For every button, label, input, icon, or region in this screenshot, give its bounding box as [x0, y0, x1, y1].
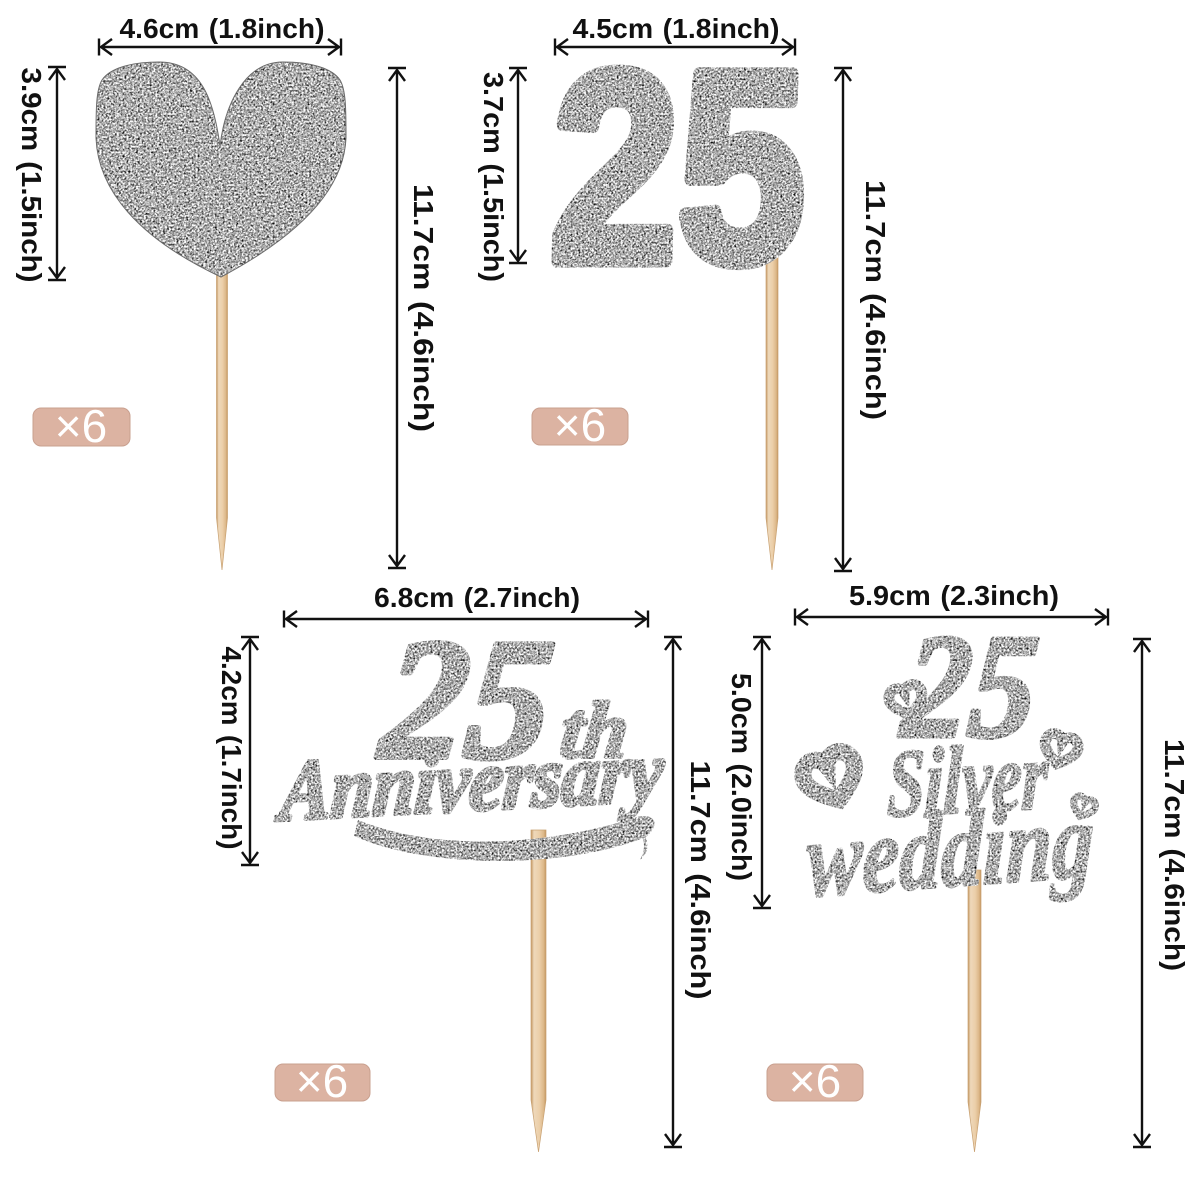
svg-text:5.9cm (2.3inch): 5.9cm (2.3inch): [849, 580, 1059, 611]
svg-text:11.7cm (4.6inch): 11.7cm (4.6inch): [860, 180, 891, 420]
svg-text:5.0cm (2.0inch): 5.0cm (2.0inch): [726, 673, 757, 881]
svg-text:×6: ×6: [55, 400, 107, 452]
svg-text:3.7cm (1.5inch): 3.7cm (1.5inch): [478, 72, 509, 282]
svg-text:6.8cm (2.7inch): 6.8cm (2.7inch): [374, 582, 580, 613]
svg-text:11.7cm (4.6inch): 11.7cm (4.6inch): [1159, 739, 1190, 971]
svg-text:×6: ×6: [554, 399, 606, 451]
svg-text:4.5cm (1.8inch): 4.5cm (1.8inch): [573, 13, 780, 44]
svg-text:3.9cm (1.5inch): 3.9cm (1.5inch): [16, 68, 47, 283]
svg-text:4.6cm (1.8inch): 4.6cm (1.8inch): [120, 13, 325, 44]
svg-text:11.7cm (4.6inch): 11.7cm (4.6inch): [685, 761, 716, 1000]
svg-text:×6: ×6: [789, 1055, 841, 1107]
svg-text:11.7cm (4.6inch): 11.7cm (4.6inch): [408, 184, 439, 432]
svg-text:4.2cm (1.7inch): 4.2cm (1.7inch): [216, 647, 247, 850]
svg-text:×6: ×6: [296, 1055, 348, 1107]
